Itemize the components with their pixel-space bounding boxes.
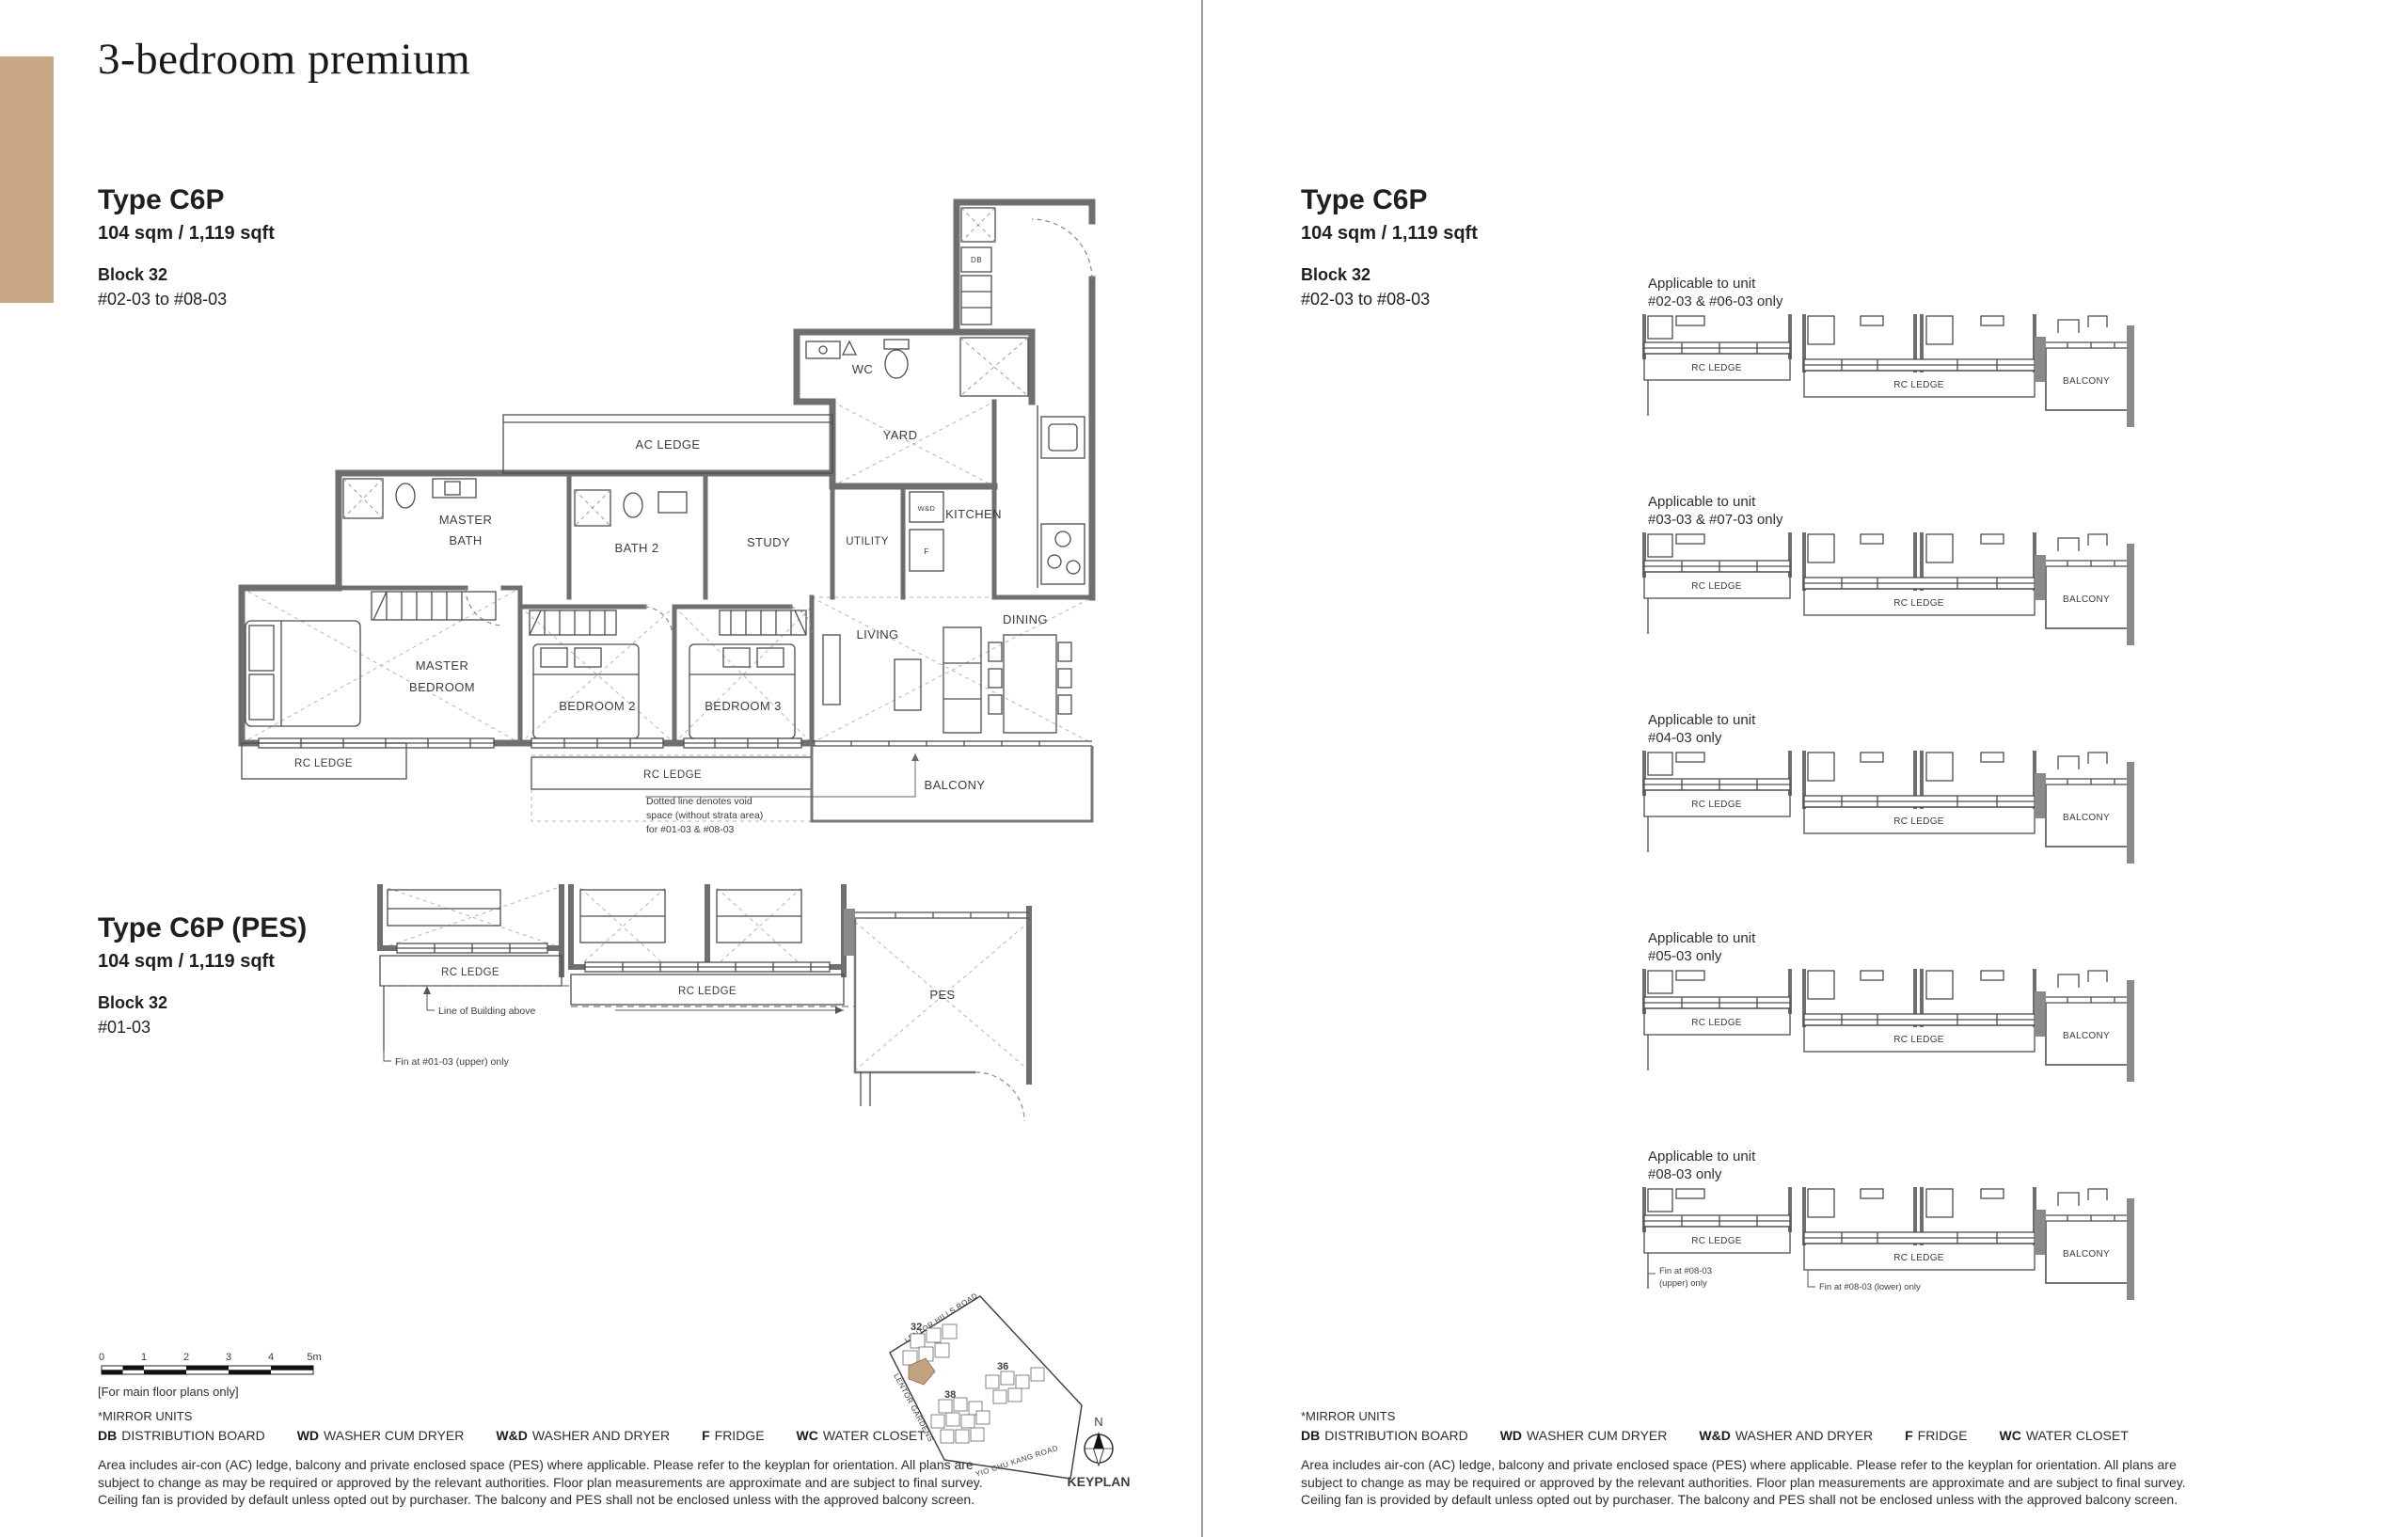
label-yard: YARD xyxy=(883,428,918,442)
road-lentor-gardens: LENTOR GARDENS xyxy=(892,1372,935,1444)
strip5-rc2: RC LEDGE xyxy=(1893,1253,1944,1263)
bath2-fixtures xyxy=(575,490,687,526)
legend-key: WD xyxy=(1500,1428,1522,1443)
label-bedroom3: BEDROOM 3 xyxy=(705,699,782,713)
scale-1: 1 xyxy=(141,1352,147,1363)
legend-val: DISTRIBUTION BOARD xyxy=(1324,1428,1467,1443)
variant-4-line2: #05-03 only xyxy=(1648,947,1755,965)
legend-val: WASHER CUM DRYER xyxy=(324,1428,464,1443)
label-master-bath-2: BATH xyxy=(449,533,482,547)
legend-val: FRIDGE xyxy=(715,1428,765,1443)
strip5-fin-annotations: Fin at #08-03 (upper) only Fin at #08-03… xyxy=(1648,1253,1921,1292)
pes-unit-header: Type C6P (PES) 104 sqm / 1,119 sqft Bloc… xyxy=(98,914,307,1038)
legend-key: WD xyxy=(297,1428,319,1443)
label-rc-mid: RC LEDGE xyxy=(643,769,702,781)
variant-4-line1: Applicable to unit xyxy=(1648,929,1755,947)
label-study: STUDY xyxy=(747,535,790,549)
label-wc: WC xyxy=(852,362,873,376)
disclaimer-line: Ceiling fan is provided by default unles… xyxy=(1301,1491,2186,1509)
legend-item: WDWASHER CUM DRYER xyxy=(297,1428,465,1443)
strip2-rc2: RC LEDGE xyxy=(1893,598,1944,609)
label-kitchen: KITCHEN xyxy=(945,507,1002,521)
label-bath2: BATH 2 xyxy=(615,541,659,555)
scale-0: 0 xyxy=(99,1352,104,1363)
legend-key: DB xyxy=(98,1428,117,1443)
strip1-rc1: RC LEDGE xyxy=(1691,363,1742,373)
legend-key: WC xyxy=(2000,1428,2021,1443)
accent-block xyxy=(0,56,54,303)
variant-1-line2: #02-03 & #06-03 only xyxy=(1648,293,1782,310)
variant-caption-4: Applicable to unit #05-03 only xyxy=(1648,929,1755,965)
strip5-balcony: BALCONY xyxy=(2063,1249,2110,1260)
kitchen-fixtures xyxy=(910,405,1085,588)
legend-key: W&D xyxy=(496,1428,527,1443)
pes-block: Block 32 xyxy=(98,993,307,1013)
strip4-rc2: RC LEDGE xyxy=(1893,1035,1944,1045)
variant-caption-1: Applicable to unit #02-03 & #06-03 only xyxy=(1648,275,1782,310)
keyplan-label: KEYPLAN xyxy=(1068,1474,1131,1489)
legend-item: WDWASHER CUM DRYER xyxy=(1500,1428,1668,1443)
block-36-cluster: 36 xyxy=(986,1361,1044,1403)
compass: N xyxy=(1085,1415,1113,1466)
pes-levels: #01-03 xyxy=(98,1018,307,1038)
label-bedroom2: BEDROOM 2 xyxy=(559,699,636,713)
pes-area: 104 sqm / 1,119 sqft xyxy=(98,951,307,973)
variant-3-line1: Applicable to unit xyxy=(1648,711,1755,729)
brochure-page: 3-bedroom premium Type C6P 104 sqm / 1,1… xyxy=(0,0,2408,1537)
pes-floor-plan: Line of Building above Fin at #01-03 (up… xyxy=(369,884,1037,1124)
legend-val: WASHER AND DRYER xyxy=(1735,1428,1873,1443)
scale-5: 5m xyxy=(307,1352,321,1363)
variant-strip-4: RC LEDGE RC LEDGE BALCONY xyxy=(1635,965,2143,1087)
label-ac-ledge: AC LEDGE xyxy=(636,437,701,452)
pes-type: Type C6P (PES) xyxy=(98,914,307,943)
label-wd: W&D xyxy=(918,504,936,513)
legend-val: WASHER CUM DRYER xyxy=(1527,1428,1667,1443)
label-utility: UTILITY xyxy=(846,536,889,547)
disclaimer-left: Area includes air-con (AC) ledge, balcon… xyxy=(98,1456,983,1509)
disclaimer-line: subject to change as may be required or … xyxy=(98,1474,983,1492)
void-note-2: space (without strata area) xyxy=(646,810,763,821)
line-building-note: Line of Building above xyxy=(438,1006,535,1017)
legend-item: FFRIDGE xyxy=(1905,1428,1967,1443)
strip1-rc2: RC LEDGE xyxy=(1893,380,1944,390)
variant-2-line2: #03-03 & #07-03 only xyxy=(1648,511,1782,529)
strip5-fin-lower: Fin at #08-03 (lower) only xyxy=(1819,1282,1921,1292)
road-yio-chu-kang: YIO CHU KANG ROAD xyxy=(974,1444,1059,1479)
legend-key: F xyxy=(1905,1428,1913,1443)
scale-note: [For main floor plans only] xyxy=(98,1385,239,1399)
legend-right: DBDISTRIBUTION BOARD WDWASHER CUM DRYER … xyxy=(1301,1428,2129,1443)
legend-item: FFRIDGE xyxy=(702,1428,764,1443)
label-balcony: BALCONY xyxy=(925,778,986,792)
pes-building-line xyxy=(382,986,855,1061)
room-labels: WC YARD KITCHEN UTILITY STUDY BATH 2 MAS… xyxy=(294,256,1048,792)
legend-val: WATER CLOSET xyxy=(2026,1428,2129,1443)
strip4-rc1: RC LEDGE xyxy=(1691,1018,1742,1028)
variant-2-line1: Applicable to unit xyxy=(1648,493,1782,511)
legend-item: W&DWASHER AND DRYER xyxy=(496,1428,670,1443)
disclaimer-right: Area includes air-con (AC) ledge, balcon… xyxy=(1301,1456,2186,1509)
disclaimer-line: Area includes air-con (AC) ledge, balcon… xyxy=(1301,1456,2186,1474)
label-master-bed-1: MASTER xyxy=(416,658,469,673)
label-dining: DINING xyxy=(1003,612,1048,626)
unit-block-right: Block 32 xyxy=(1301,265,1478,285)
legend-val: FRIDGE xyxy=(1918,1428,1968,1443)
unit-area-right: 104 sqm / 1,119 sqft xyxy=(1301,223,1478,245)
north-label: N xyxy=(1094,1415,1102,1429)
variant-5-line2: #08-03 only xyxy=(1648,1165,1755,1183)
variant-1-line1: Applicable to unit xyxy=(1648,275,1782,293)
disclaimer-line: Ceiling fan is provided by default unles… xyxy=(98,1491,983,1509)
label-fridge: F xyxy=(924,547,929,556)
disclaimer-line: Area includes air-con (AC) ledge, balcon… xyxy=(98,1456,983,1474)
pes-notes: Line of Building above Fin at #01-03 (up… xyxy=(395,1006,535,1068)
living-dining-furniture xyxy=(823,627,1071,733)
legend-item: DBDISTRIBUTION BOARD xyxy=(1301,1428,1468,1443)
master-bath-fixtures xyxy=(343,479,503,626)
main-floor-plan: WC YARD KITCHEN UTILITY STUDY BATH 2 MAS… xyxy=(230,193,1101,851)
pes-rc-mid-label: RC LEDGE xyxy=(678,986,737,997)
variant-strip-5: RC LEDGE RC LEDGE BALCONY Fin at #08-03 … xyxy=(1635,1183,2143,1306)
entry-corridor-fixtures xyxy=(961,208,1092,325)
block-32-cluster: 32 xyxy=(903,1322,957,1385)
strip5-rc1: RC LEDGE xyxy=(1691,1236,1742,1246)
strip2-rc1: RC LEDGE xyxy=(1691,581,1742,592)
page-divider xyxy=(1201,0,1203,1537)
pes-fragments xyxy=(380,890,844,1005)
mirror-units-right: *MIRROR UNITS xyxy=(1301,1409,1395,1423)
void-note-3: for #01-03 & #08-03 xyxy=(646,824,735,835)
legend-left: DBDISTRIBUTION BOARD WDWASHER CUM DRYER … xyxy=(98,1428,926,1443)
north-needle xyxy=(1094,1432,1104,1449)
label-db: DB xyxy=(971,256,982,264)
strip3-rc2: RC LEDGE xyxy=(1893,816,1944,827)
block-32-label: 32 xyxy=(911,1322,922,1333)
ac-square xyxy=(960,338,1028,396)
variant-caption-3: Applicable to unit #04-03 only xyxy=(1648,711,1755,747)
strip3-balcony: BALCONY xyxy=(2063,813,2110,823)
scale-4: 4 xyxy=(268,1352,274,1363)
label-master-bed-2: BEDROOM xyxy=(409,680,475,694)
legend-item: WCWATER CLOSET xyxy=(2000,1428,2129,1443)
scale-bar: 0 1 2 3 4 5m xyxy=(96,1351,359,1385)
strip1-balcony: BALCONY xyxy=(2063,376,2110,387)
scale-2: 2 xyxy=(183,1352,189,1363)
variant-strip-1: RC LEDGE RC LEDGE BALCONY xyxy=(1635,310,2143,433)
pes-rc-left-label: RC LEDGE xyxy=(441,967,499,978)
unit-type-right: Type C6P xyxy=(1301,186,1478,214)
legend-val: DISTRIBUTION BOARD xyxy=(121,1428,264,1443)
variant-3-line2: #04-03 only xyxy=(1648,729,1755,747)
strip5-fin-upper-1: Fin at #08-03 xyxy=(1659,1266,1712,1276)
block-38-cluster: 38 xyxy=(931,1389,990,1443)
strip5-fin-upper-2: (upper) only xyxy=(1659,1278,1707,1289)
unit-levels-right: #02-03 to #08-03 xyxy=(1301,290,1478,309)
fin-0103-note: Fin at #01-03 (upper) only xyxy=(395,1056,510,1068)
legend-key: DB xyxy=(1301,1428,1320,1443)
label-master-bath-1: MASTER xyxy=(439,513,493,527)
right-unit-header: Type C6P 104 sqm / 1,119 sqft Block 32 #… xyxy=(1301,186,1478,309)
label-living: LIVING xyxy=(856,627,898,642)
legend-key: W&D xyxy=(1699,1428,1730,1443)
void-note: Dotted line denotes void space (without … xyxy=(646,796,763,835)
ceiling-dashed-lines xyxy=(242,402,1092,821)
variant-strip-3: RC LEDGE RC LEDGE BALCONY xyxy=(1635,747,2143,869)
mirror-units-left: *MIRROR UNITS xyxy=(98,1409,192,1423)
strip2-balcony: BALCONY xyxy=(2063,594,2110,605)
variant-caption-2: Applicable to unit #03-03 & #07-03 only xyxy=(1648,493,1782,529)
legend-val: WASHER AND DRYER xyxy=(532,1428,670,1443)
keyplan: LENTOR HILLS ROAD LENTOR GARDENS YIO CHU… xyxy=(875,1291,1138,1521)
pes-label: PES xyxy=(929,988,955,1002)
void-note-1: Dotted line denotes void xyxy=(646,796,752,807)
block-38-label: 38 xyxy=(944,1389,956,1401)
pes-terrace xyxy=(844,909,1029,1121)
block-36-label: 36 xyxy=(997,1361,1008,1372)
legend-item: W&DWASHER AND DRYER xyxy=(1699,1428,1873,1443)
strip3-rc1: RC LEDGE xyxy=(1691,800,1742,810)
page-title: 3-bedroom premium xyxy=(98,34,470,85)
legend-key: F xyxy=(702,1428,710,1443)
strip4-balcony: BALCONY xyxy=(2063,1031,2110,1041)
label-rc-left: RC LEDGE xyxy=(294,758,353,769)
legend-key: WC xyxy=(797,1428,818,1443)
legend-item: DBDISTRIBUTION BOARD xyxy=(98,1428,265,1443)
scale-3: 3 xyxy=(226,1352,231,1363)
variant-5-line1: Applicable to unit xyxy=(1648,1148,1755,1165)
variant-strip-2: RC LEDGE RC LEDGE BALCONY xyxy=(1635,529,2143,651)
variant-caption-5: Applicable to unit #08-03 only xyxy=(1648,1148,1755,1183)
disclaimer-line: subject to change as may be required or … xyxy=(1301,1474,2186,1492)
